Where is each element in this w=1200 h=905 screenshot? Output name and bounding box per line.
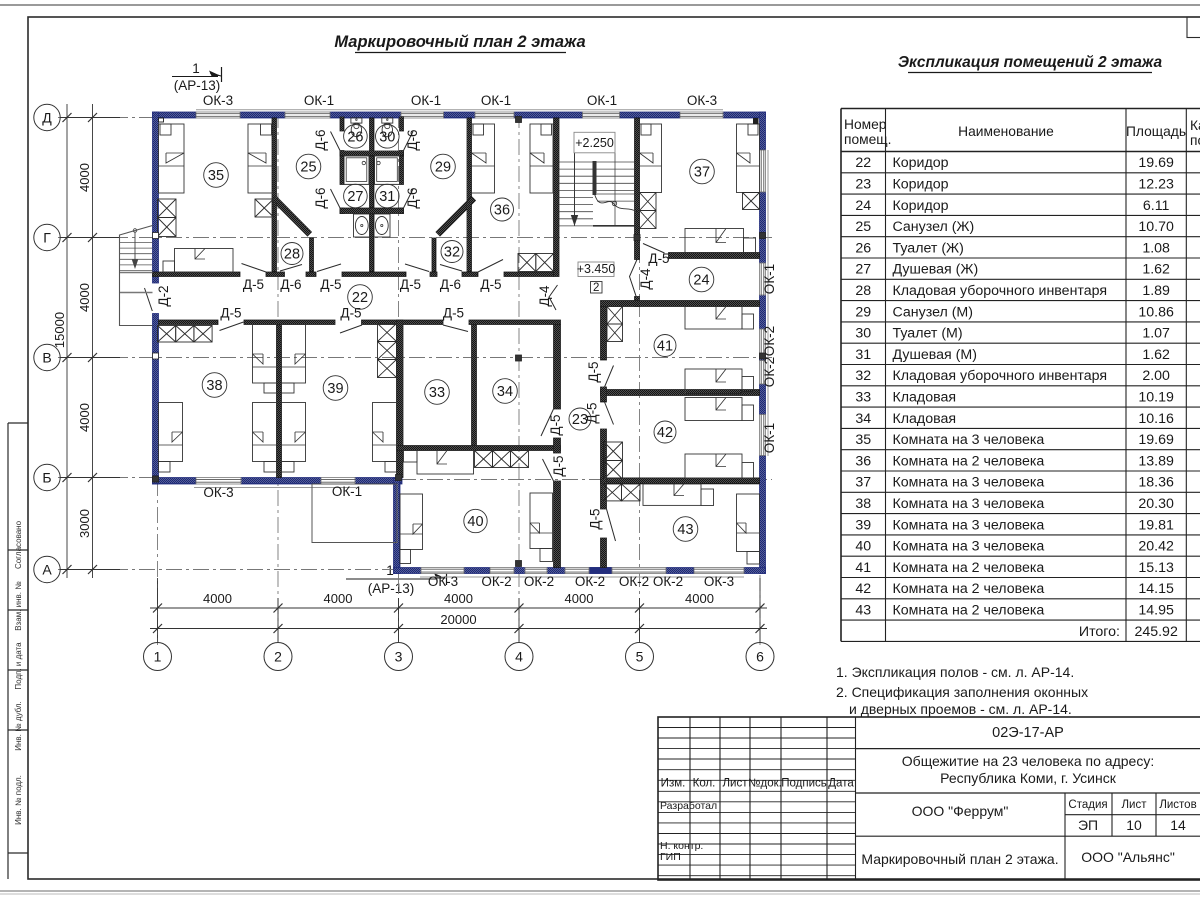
- svg-text:+3.450: +3.450: [577, 262, 616, 276]
- svg-text:ООО "Альянс": ООО "Альянс": [1081, 849, 1175, 865]
- svg-text:19.81: 19.81: [1138, 517, 1174, 533]
- svg-text:ОК-3: ОК-3: [704, 574, 734, 589]
- svg-text:1.07: 1.07: [1142, 326, 1170, 342]
- svg-text:ЭП: ЭП: [1078, 817, 1098, 833]
- svg-text:Д-6: Д-6: [440, 277, 461, 292]
- svg-text:6.11: 6.11: [1143, 198, 1170, 214]
- svg-text:Кол.: Кол.: [693, 778, 716, 790]
- svg-text:3: 3: [395, 649, 403, 665]
- svg-text:Д-5: Д-5: [588, 508, 603, 529]
- svg-text:ОК-1: ОК-1: [411, 93, 441, 108]
- svg-text:1: 1: [386, 563, 394, 578]
- svg-text:39: 39: [855, 517, 871, 533]
- svg-text:14.95: 14.95: [1138, 602, 1174, 618]
- svg-text:ОК-2: ОК-2: [762, 326, 777, 356]
- svg-text:3000: 3000: [77, 509, 92, 538]
- svg-text:4000: 4000: [444, 591, 473, 606]
- svg-text:Комната на 2 человека: Комната на 2 человека: [893, 602, 1045, 618]
- svg-text:ОК-1: ОК-1: [481, 93, 511, 108]
- svg-text:Д-5: Д-5: [400, 277, 421, 292]
- svg-text:2. Спецификация заполнения око: 2. Спецификация заполнения оконных: [836, 684, 1088, 700]
- svg-text:26: 26: [347, 129, 363, 145]
- svg-text:18.36: 18.36: [1138, 475, 1174, 491]
- svg-text:Инв. № подл.: Инв. № подл.: [14, 775, 23, 825]
- svg-text:и дверных проемов - см. л. АР-: и дверных проемов - см. л. АР-14.: [849, 701, 1072, 717]
- svg-text:20000: 20000: [440, 612, 476, 627]
- svg-text:4000: 4000: [565, 591, 594, 606]
- svg-text:24: 24: [693, 273, 709, 289]
- svg-text:Республика Коми, г. Усинск: Республика Коми, г. Усинск: [940, 770, 1117, 786]
- svg-text:В: В: [42, 350, 51, 366]
- svg-text:Туалет (Ж): Туалет (Ж): [893, 240, 964, 256]
- svg-text:26: 26: [855, 240, 871, 256]
- svg-text:36: 36: [855, 453, 871, 469]
- svg-text:28: 28: [855, 283, 871, 299]
- svg-text:39: 39: [327, 381, 343, 397]
- svg-text:35: 35: [208, 168, 224, 184]
- svg-text:5: 5: [636, 649, 644, 665]
- svg-text:1.62: 1.62: [1142, 262, 1170, 278]
- svg-text:Д-5: Д-5: [340, 306, 361, 321]
- svg-text:Общежитие на 23 человека по ад: Общежитие на 23 человека по адресу:: [902, 753, 1154, 769]
- svg-text:24: 24: [855, 198, 871, 214]
- svg-text:4000: 4000: [77, 163, 92, 192]
- svg-text:30: 30: [855, 326, 871, 342]
- svg-text:23: 23: [855, 176, 871, 192]
- svg-text:+2.250: +2.250: [575, 136, 614, 150]
- svg-text:ОК-1: ОК-1: [587, 93, 617, 108]
- svg-text:42: 42: [855, 581, 871, 597]
- svg-text:1: 1: [154, 649, 162, 665]
- svg-text:14.15: 14.15: [1138, 581, 1174, 597]
- svg-text:4000: 4000: [685, 591, 714, 606]
- svg-text:31: 31: [855, 347, 871, 363]
- svg-text:22: 22: [352, 290, 368, 306]
- svg-text:Номер: Номер: [844, 117, 887, 132]
- svg-text:1: 1: [192, 61, 200, 76]
- svg-text:ОК-1: ОК-1: [762, 264, 777, 294]
- svg-text:1.62: 1.62: [1142, 347, 1170, 363]
- svg-text:27: 27: [347, 189, 363, 205]
- svg-text:15.13: 15.13: [1138, 560, 1174, 576]
- svg-text:Подпись: Подпись: [781, 778, 827, 790]
- svg-text:ООО "Феррум": ООО "Феррум": [912, 803, 1009, 819]
- svg-text:Д-5: Д-5: [320, 277, 341, 292]
- svg-text:35: 35: [855, 432, 871, 448]
- svg-text:28: 28: [284, 247, 300, 263]
- svg-text:25: 25: [300, 160, 316, 176]
- svg-text:Лист: Лист: [723, 778, 749, 790]
- svg-text:ОК-2: ОК-2: [524, 574, 554, 589]
- svg-text:Д-5: Д-5: [551, 455, 566, 476]
- svg-text:Д-6: Д-6: [405, 129, 420, 150]
- svg-text:Д-5: Д-5: [243, 277, 264, 292]
- svg-text:10: 10: [1126, 817, 1142, 833]
- svg-text:19.69: 19.69: [1138, 155, 1174, 171]
- svg-text:20.30: 20.30: [1138, 496, 1174, 512]
- svg-text:Комната на 3 человека: Комната на 3 человека: [893, 475, 1045, 491]
- svg-text:33: 33: [855, 389, 871, 405]
- svg-text:Комната на 3 человека: Комната на 3 человека: [893, 517, 1045, 533]
- svg-text:36: 36: [494, 203, 510, 219]
- svg-text:29: 29: [435, 160, 451, 176]
- svg-text:25: 25: [855, 219, 871, 235]
- svg-text:Д-4: Д-4: [638, 268, 653, 290]
- svg-text:ОК-1: ОК-1: [332, 484, 362, 499]
- svg-text:Комната на 2 человека: Комната на 2 человека: [893, 453, 1045, 469]
- svg-text:Инв. № дубл.: Инв. № дубл.: [14, 701, 23, 751]
- svg-text:32: 32: [444, 245, 460, 261]
- svg-text:Душевая (Ж): Душевая (Ж): [893, 262, 979, 278]
- svg-text:Подп. и дата: Подп. и дата: [14, 642, 23, 690]
- svg-text:Д: Д: [42, 110, 52, 126]
- svg-text:2.00: 2.00: [1142, 368, 1170, 384]
- svg-text:Итого:: Итого:: [1079, 624, 1120, 640]
- svg-text:15000: 15000: [52, 312, 67, 348]
- svg-text:37: 37: [855, 475, 871, 491]
- svg-text:Д-6: Д-6: [313, 129, 328, 150]
- svg-text:Маркировочный план 2 этажа: Маркировочный план 2 этажа: [334, 33, 585, 51]
- svg-text:Комната на 2 человека: Комната на 2 человека: [893, 581, 1045, 597]
- svg-text:ОК-1: ОК-1: [762, 423, 777, 453]
- svg-text:Д-4: Д-4: [537, 285, 552, 307]
- svg-text:1. Экспликация полов - см. л.: 1. Экспликация полов - см. л. АР-14.: [836, 664, 1074, 680]
- svg-text:10.70: 10.70: [1138, 219, 1174, 235]
- svg-text:Лист: Лист: [1122, 799, 1148, 811]
- svg-text:Кладовая уборочного инвентаря: Кладовая уборочного инвентаря: [893, 368, 1108, 384]
- svg-text:ОК-2: ОК-2: [575, 574, 605, 589]
- svg-text:Комната на 3 человека: Комната на 3 человека: [893, 539, 1045, 555]
- svg-text:34: 34: [497, 384, 513, 400]
- svg-text:43: 43: [677, 522, 693, 538]
- svg-text:Изм.: Изм.: [661, 778, 686, 790]
- svg-text:Экспликация помещений 2 этажа: Экспликация помещений 2 этажа: [898, 54, 1163, 71]
- svg-text:Кладовая уборочного инвентаря: Кладовая уборочного инвентаря: [893, 283, 1108, 299]
- svg-text:6: 6: [756, 649, 764, 665]
- svg-text:Комната на 2 человека: Комната на 2 человека: [893, 560, 1045, 576]
- svg-text:Взам. инв. №: Взам. инв. №: [14, 581, 23, 631]
- svg-text:4000: 4000: [324, 591, 353, 606]
- svg-text:13.89: 13.89: [1138, 453, 1174, 469]
- svg-text:1.89: 1.89: [1142, 283, 1170, 299]
- svg-text:Д-6: Д-6: [280, 277, 301, 292]
- svg-text:20.42: 20.42: [1138, 539, 1174, 555]
- svg-text:32: 32: [855, 368, 871, 384]
- svg-text:ОК-3: ОК-3: [203, 93, 233, 108]
- svg-text:№док.: №док.: [748, 778, 782, 790]
- svg-text:по: по: [1190, 133, 1200, 148]
- svg-text:14: 14: [1170, 817, 1186, 833]
- svg-text:2: 2: [593, 282, 599, 294]
- svg-text:Туалет (М): Туалет (М): [893, 326, 963, 342]
- svg-text:ГИП: ГИП: [660, 851, 681, 863]
- svg-text:Комната на 3 человека: Комната на 3 человека: [893, 432, 1045, 448]
- svg-text:Дата: Дата: [828, 778, 854, 790]
- svg-text:Наименование: Наименование: [958, 124, 1054, 139]
- svg-text:10.19: 10.19: [1138, 389, 1174, 405]
- svg-text:02Э-17-АР: 02Э-17-АР: [992, 725, 1064, 741]
- svg-text:22: 22: [855, 155, 871, 171]
- svg-text:30: 30: [379, 129, 395, 145]
- svg-text:245.92: 245.92: [1134, 624, 1178, 640]
- svg-text:Листов: Листов: [1159, 799, 1196, 811]
- svg-text:40: 40: [855, 539, 871, 555]
- svg-text:Разработал: Разработал: [660, 800, 717, 812]
- svg-text:ОК-2: ОК-2: [481, 574, 511, 589]
- svg-text:Д-6: Д-6: [405, 187, 420, 208]
- svg-text:ОК-3: ОК-3: [428, 574, 458, 589]
- svg-text:19.69: 19.69: [1138, 432, 1174, 448]
- svg-text:38: 38: [206, 378, 222, 394]
- svg-text:4000: 4000: [77, 283, 92, 312]
- svg-text:Д-5: Д-5: [548, 414, 563, 435]
- svg-text:Д-5: Д-5: [480, 277, 501, 292]
- svg-text:4: 4: [515, 649, 523, 665]
- svg-text:Б: Б: [42, 470, 51, 486]
- svg-text:Стадия: Стадия: [1068, 799, 1107, 811]
- svg-text:42: 42: [657, 425, 673, 441]
- svg-text:43: 43: [855, 602, 871, 618]
- svg-text:ОК-2: ОК-2: [762, 357, 777, 387]
- svg-text:31: 31: [379, 189, 395, 205]
- svg-text:40: 40: [467, 514, 483, 530]
- svg-text:ОК-2: ОК-2: [619, 574, 649, 589]
- svg-text:41: 41: [657, 339, 673, 355]
- svg-text:Комната на 3 человека: Комната на 3 человека: [893, 496, 1045, 512]
- svg-text:Кладовая: Кладовая: [893, 411, 957, 427]
- svg-text:23: 23: [572, 412, 588, 428]
- svg-text:Д-2: Д-2: [156, 285, 171, 306]
- svg-text:Г: Г: [43, 230, 51, 246]
- svg-text:29: 29: [855, 304, 871, 320]
- svg-text:33: 33: [429, 385, 445, 401]
- svg-text:12.23: 12.23: [1138, 176, 1174, 192]
- svg-text:10.86: 10.86: [1138, 304, 1174, 320]
- svg-text:27: 27: [855, 262, 871, 278]
- svg-text:ОК-3: ОК-3: [687, 93, 717, 108]
- svg-text:ОК-1: ОК-1: [304, 93, 334, 108]
- svg-text:Коридор: Коридор: [893, 155, 949, 171]
- svg-text:Санузел (Ж): Санузел (Ж): [893, 219, 975, 235]
- svg-text:4000: 4000: [203, 591, 232, 606]
- svg-text:помещ.: помещ.: [844, 132, 892, 147]
- svg-text:Душевая (М): Душевая (М): [893, 347, 977, 363]
- svg-text:Санузел (М): Санузел (М): [893, 304, 973, 320]
- svg-text:37: 37: [694, 165, 710, 181]
- svg-text:Д-5: Д-5: [586, 361, 601, 382]
- svg-text:Коридор: Коридор: [893, 198, 949, 214]
- svg-text:41: 41: [855, 560, 871, 576]
- svg-text:Кладовая: Кладовая: [893, 389, 957, 405]
- svg-text:Д-5: Д-5: [220, 306, 241, 321]
- svg-text:Согласовано: Согласовано: [14, 520, 23, 569]
- svg-text:(АР-13): (АР-13): [368, 581, 415, 596]
- svg-text:Маркировочный план 2 этажа.: Маркировочный план 2 этажа.: [861, 851, 1058, 867]
- svg-text:4000: 4000: [77, 403, 92, 432]
- svg-text:1.08: 1.08: [1142, 240, 1170, 256]
- svg-text:ОК-2: ОК-2: [653, 574, 683, 589]
- svg-text:2: 2: [274, 649, 282, 665]
- svg-text:ОК-3: ОК-3: [203, 485, 233, 500]
- svg-text:38: 38: [855, 496, 871, 512]
- svg-text:Д-5: Д-5: [443, 306, 464, 321]
- svg-text:Площадь: Площадь: [1126, 124, 1186, 139]
- svg-text:10.16: 10.16: [1138, 411, 1174, 427]
- svg-text:Д-6: Д-6: [313, 187, 328, 208]
- svg-text:Ка: Ка: [1190, 118, 1200, 133]
- svg-text:Коридор: Коридор: [893, 176, 949, 192]
- svg-text:Д-5: Д-5: [648, 251, 669, 266]
- svg-text:А: А: [42, 562, 52, 578]
- svg-text:34: 34: [855, 411, 871, 427]
- svg-text:(АР-13): (АР-13): [174, 78, 221, 93]
